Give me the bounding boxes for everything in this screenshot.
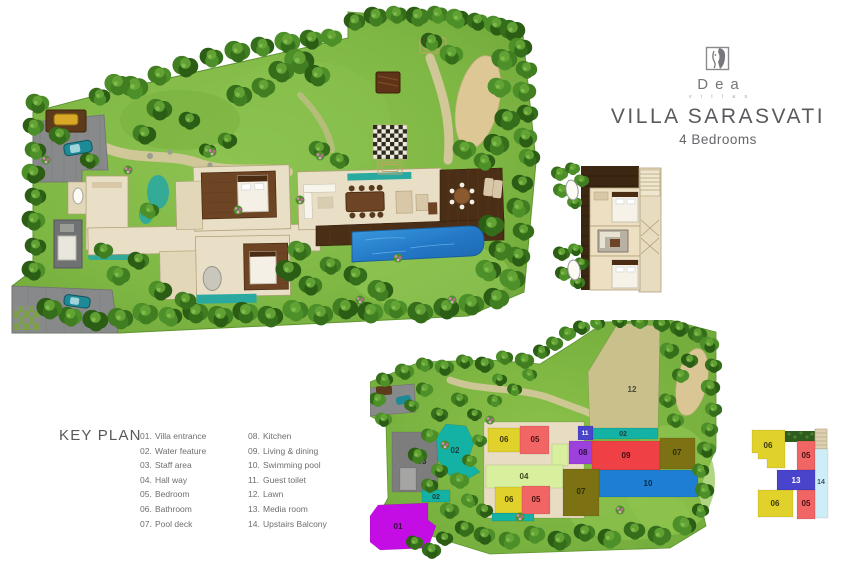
stairs <box>640 170 660 196</box>
key-block-label: 02 <box>451 446 460 455</box>
key-block <box>552 444 568 466</box>
legend-item: 11.Guest toilet <box>248 473 327 488</box>
legend-item: 09.Living & dining <box>248 444 327 459</box>
legend-item: 01.Villa entrance <box>140 429 206 444</box>
key-block-label: 13 <box>792 476 801 485</box>
balcony-stairs-key <box>815 429 827 449</box>
key-block-label: 06 <box>505 495 514 504</box>
legend-item: 12.Lawn <box>248 487 327 502</box>
key-plan-heading: KEY PLAN <box>59 427 142 444</box>
key-block-label: 14 <box>817 479 825 486</box>
grass-pavers <box>14 306 40 330</box>
key-block-label: 09 <box>622 451 631 460</box>
legend-item: 05.Bedroom <box>140 487 206 502</box>
water-feature-strip <box>196 294 256 304</box>
swimming-pool <box>352 226 484 262</box>
upstairs-floor-plan <box>548 158 683 308</box>
legend-item: 04.Hall way <box>140 473 206 488</box>
stone-bathtub <box>203 266 221 290</box>
key-block-label: 12 <box>628 385 637 394</box>
key-block-label: 08 <box>579 448 588 457</box>
brand-logo: Dea v i l l a s <box>598 46 838 100</box>
key-block-label: 02 <box>619 431 627 438</box>
key-block-label: 07 <box>673 448 682 457</box>
upstairs-bedroom-top <box>590 188 640 226</box>
key-block-label: 07 <box>577 487 586 496</box>
legend-item: 13.Media room <box>248 502 327 517</box>
legend-item: 07.Pool deck <box>140 517 206 532</box>
dea-villas-logo-icon <box>705 46 731 74</box>
legend-item: 02.Water feature <box>140 444 206 459</box>
upstairs-key-plan: 060514130605 <box>748 424 843 529</box>
villa-subtitle: 4 Bedrooms <box>598 132 838 147</box>
sun-lounger <box>492 180 503 199</box>
key-block-label: 11 <box>582 430 589 437</box>
title-block: VILLA SARASVATI 4 Bedrooms <box>598 105 838 147</box>
villa-title: VILLA SARASVATI <box>598 105 838 129</box>
legend-item: 06.Bathroom <box>140 502 206 517</box>
key-block-label: 01 <box>394 522 403 531</box>
legend-column-1: 01.Villa entrance02.Water feature03.Staf… <box>140 429 206 531</box>
staff-building <box>54 220 82 268</box>
parked-car-yellow <box>54 114 78 125</box>
key-block-01 <box>370 503 436 550</box>
key-block-label: 04 <box>520 472 529 481</box>
key-block-label: 06 <box>764 441 773 450</box>
deck-round-table <box>454 188 470 204</box>
key-block <box>400 468 416 490</box>
ground-key-plan: 1202030202010605040605080907100711 <box>370 320 722 565</box>
brand-tagline: v i l l a s <box>602 94 838 100</box>
living-dining-pavilion <box>297 168 442 230</box>
legend-column-2: 08.Kitchen09.Living & dining10.Swimming … <box>248 429 327 531</box>
upstairs-bedroom-bottom <box>590 256 640 290</box>
key-block-label: 10 <box>644 479 653 488</box>
key-block-label: 05 <box>532 495 541 504</box>
brochure-page: 1202030202010605040605080907100711 06051… <box>0 0 860 573</box>
legend-item: 10.Swimming pool <box>248 458 327 473</box>
lawn-chessboard <box>373 125 407 159</box>
legend-item: 14.Upstairs Balcony <box>248 517 327 532</box>
legend-item: 08.Kitchen <box>248 429 327 444</box>
sun-lounger <box>483 178 494 197</box>
key-block-label: 06 <box>771 499 780 508</box>
garden-hut <box>376 72 400 93</box>
brand-name: Dea <box>605 76 838 93</box>
key-block-label: 05 <box>531 435 540 444</box>
main-site-plan <box>0 0 545 340</box>
upstairs-balcony <box>639 168 661 292</box>
key-block-label: 02 <box>432 494 440 501</box>
key-block-label: 05 <box>802 451 811 460</box>
key-block-label: 05 <box>802 499 811 508</box>
upstairs-media-room <box>590 226 640 256</box>
legend-item: 03.Staff area <box>140 458 206 473</box>
key-block-label: 06 <box>500 435 509 444</box>
bathtub-oval <box>73 188 83 204</box>
